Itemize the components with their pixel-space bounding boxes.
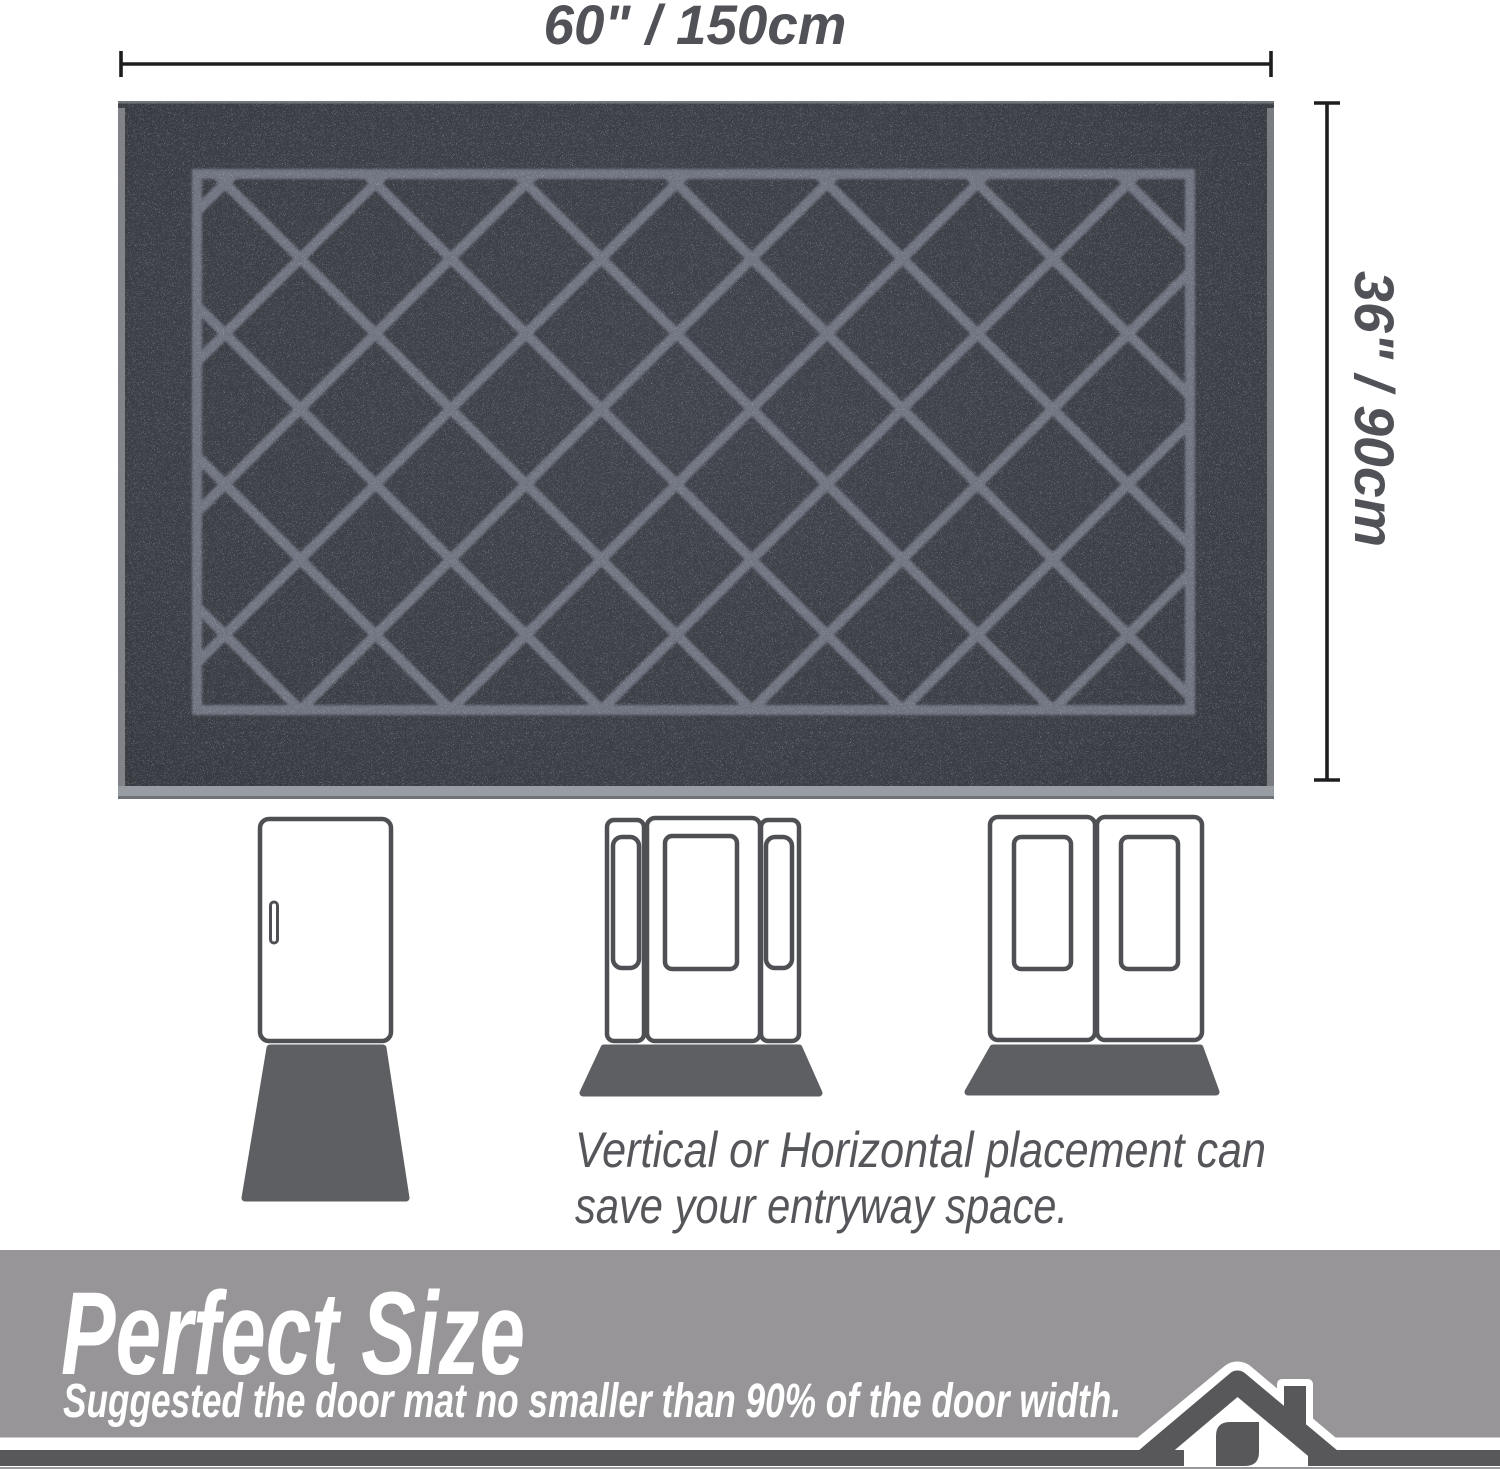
svg-text:Vertical or Horizontal placeme: Vertical or Horizontal placement can [575,1122,1266,1178]
svg-text:36" / 90cm: 36" / 90cm [1343,271,1406,547]
svg-text:save your entryway space.: save your entryway space. [575,1178,1068,1234]
svg-text:Suggested the door mat no smal: Suggested the door mat no smaller than 9… [63,1375,1121,1428]
svg-text:60" / 150cm: 60" / 150cm [544,0,847,56]
